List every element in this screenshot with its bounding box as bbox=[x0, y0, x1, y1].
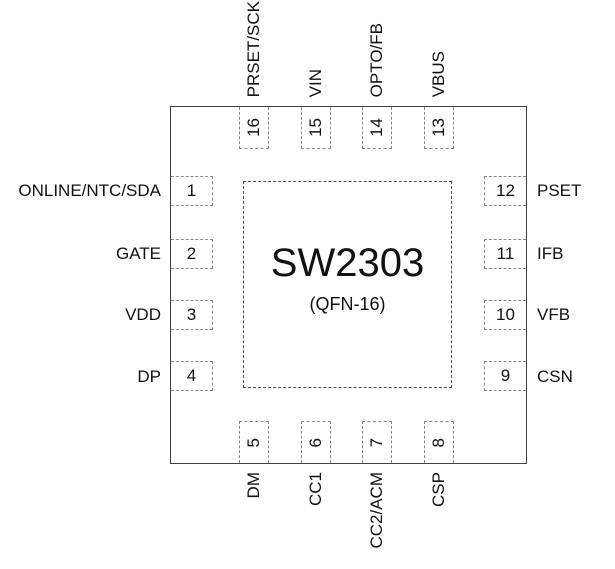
pin-label-5: DM bbox=[243, 472, 265, 498]
pin-box-14: 14 bbox=[362, 107, 392, 149]
pin-label-6: CC1 bbox=[305, 472, 327, 506]
pin-box-2: 2 bbox=[171, 239, 213, 269]
pin-label-13: VBUS bbox=[428, 51, 450, 97]
pin-number-9: 9 bbox=[501, 366, 510, 386]
pin-number-8: 8 bbox=[429, 438, 449, 447]
pin-number-15: 15 bbox=[306, 118, 326, 137]
pin-box-16: 16 bbox=[239, 107, 269, 149]
pinout-diagram: 16 15 14 13 1 2 3 4 12 11 10 9 5 6 7 8 S… bbox=[0, 0, 615, 569]
pin-label-7: CC2/ACM bbox=[366, 472, 388, 549]
pin-number-13: 13 bbox=[429, 118, 449, 137]
pin-label-16: PRSET/SCK bbox=[243, 1, 265, 97]
chip-name: SW2303 bbox=[271, 241, 424, 285]
pin-number-7: 7 bbox=[367, 438, 387, 447]
chip-package: (QFN-16) bbox=[310, 293, 386, 315]
pin-box-1: 1 bbox=[171, 176, 213, 206]
pin-label-15: VIN bbox=[305, 69, 327, 97]
pin-label-1: ONLINE/NTC/SDA bbox=[0, 180, 161, 202]
pin-box-15: 15 bbox=[301, 107, 331, 149]
pin-label-2: GATE bbox=[0, 243, 161, 265]
pin-box-7: 7 bbox=[362, 421, 392, 463]
pin-box-11: 11 bbox=[484, 239, 526, 269]
pin-number-3: 3 bbox=[187, 305, 196, 325]
pin-label-14: OPTO/FB bbox=[366, 23, 388, 97]
pin-number-10: 10 bbox=[496, 305, 515, 325]
thermal-pad-outline: SW2303 (QFN-16) bbox=[243, 181, 452, 388]
pin-box-8: 8 bbox=[424, 421, 454, 463]
pin-number-5: 5 bbox=[244, 438, 264, 447]
pin-label-12: PSET bbox=[537, 180, 615, 202]
pin-number-4: 4 bbox=[187, 366, 196, 386]
pin-box-4: 4 bbox=[171, 361, 213, 391]
pin-number-2: 2 bbox=[187, 244, 196, 264]
pin-number-14: 14 bbox=[367, 118, 387, 137]
pin-label-3: VDD bbox=[0, 304, 161, 326]
pin-label-4: DP bbox=[0, 366, 161, 388]
pin-label-11: IFB bbox=[537, 243, 615, 265]
pin-number-12: 12 bbox=[496, 181, 515, 201]
pin-box-5: 5 bbox=[239, 421, 269, 463]
pin-number-1: 1 bbox=[187, 181, 196, 201]
pin-box-13: 13 bbox=[424, 107, 454, 149]
pin-box-12: 12 bbox=[484, 176, 526, 206]
pin-box-10: 10 bbox=[484, 300, 526, 330]
pin-label-10: VFB bbox=[537, 304, 615, 326]
pin-box-6: 6 bbox=[301, 421, 331, 463]
pin-box-9: 9 bbox=[484, 361, 526, 391]
pin-number-11: 11 bbox=[497, 244, 515, 264]
pin-label-9: CSN bbox=[537, 366, 615, 388]
pin-box-3: 3 bbox=[171, 300, 213, 330]
pin-number-16: 16 bbox=[244, 118, 264, 137]
pin-label-8: CSP bbox=[428, 472, 450, 507]
pin-number-6: 6 bbox=[306, 438, 326, 447]
